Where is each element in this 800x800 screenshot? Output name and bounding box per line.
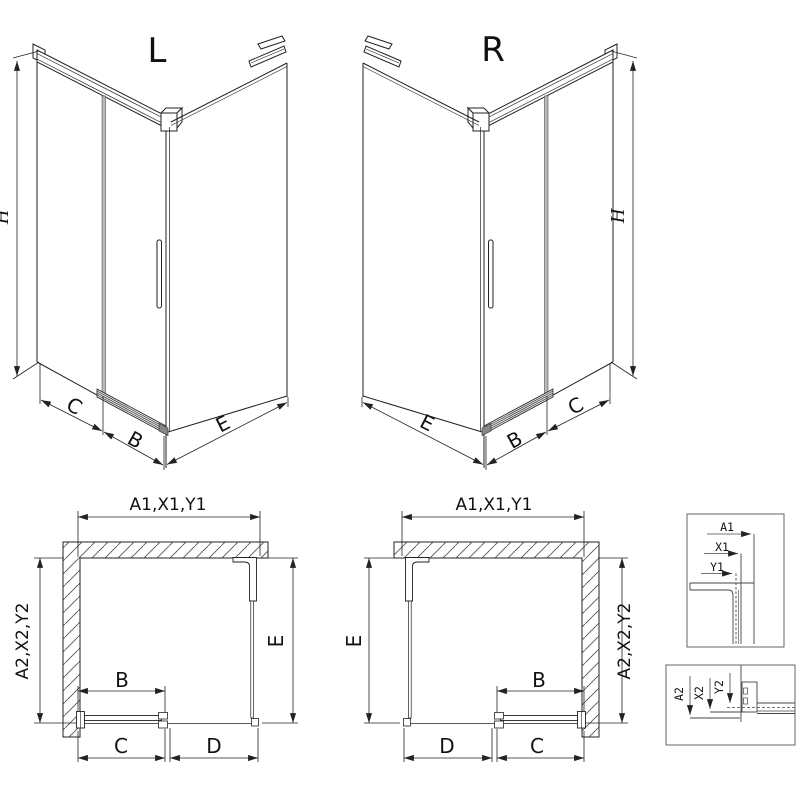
plan-left-dim-c: C: [114, 734, 128, 758]
iso-left-dim-b: B: [124, 426, 148, 454]
detail-bottom-profile-geometry: [727, 666, 795, 723]
detail-a2-label: A2: [672, 687, 686, 701]
plan-view-right: A1,X1,Y1 E A2,X2,Y2 B D C: [342, 495, 635, 762]
plan-left-dim-a2: A2,X2,Y2: [13, 603, 33, 680]
detail-profile-bottom: A2 X2 Y2: [666, 665, 795, 745]
iso-right-dim-c: C: [564, 392, 588, 420]
drawing-canvas: L H C B E R H E B C A1,X1,Y1 A2,X2,Y2 E …: [0, 0, 800, 800]
plan-left-dim-b: B: [115, 668, 129, 692]
technical-drawing-sheet: L H C B E R H E B C A1,X1,Y1 A2,X2,Y2 E …: [0, 0, 800, 800]
detail-x2-label: X2: [692, 686, 706, 700]
iso-right-dim-b: B: [503, 426, 527, 454]
plan-left-dim-a1: A1,X1,Y1: [130, 495, 207, 515]
plan-left-dim-e: E: [264, 635, 288, 648]
plan-left-walls: [63, 542, 268, 737]
iso-view-right: R H E B C: [362, 30, 637, 470]
iso-left-dim-e: E: [212, 410, 234, 437]
iso-view-left: L H C B E: [0, 31, 288, 470]
plan-view-left: A1,X1,Y1 A2,X2,Y2 E B C D: [13, 495, 298, 762]
iso-left-dim-h: H: [0, 208, 13, 225]
plan-right-dim-b: B: [532, 668, 546, 692]
detail-y2-label: Y2: [712, 680, 726, 694]
detail-a1-label: A1: [720, 520, 734, 534]
iso-left-title: L: [148, 31, 167, 71]
detail-top-profile-geometry: [690, 583, 754, 644]
plan-left-dim-d: D: [206, 734, 221, 758]
detail-y1-label: Y1: [710, 560, 724, 574]
plan-right-dim-a1: A1,X1,Y1: [456, 495, 533, 515]
plan-right-walls: [394, 542, 599, 737]
iso-left-dim-c: C: [62, 392, 86, 420]
iso-right-title: R: [481, 30, 505, 70]
detail-x1-label: X1: [715, 540, 729, 554]
iso-right-dim-h: H: [607, 207, 629, 224]
plan-right-dim-c: C: [530, 734, 544, 758]
plan-right-dim-e: E: [342, 635, 366, 648]
plan-right-dim-d: D: [439, 734, 454, 758]
detail-profile-top: A1 X1 Y1: [687, 514, 784, 647]
plan-right-dim-a2: A2,X2,Y2: [615, 603, 635, 680]
